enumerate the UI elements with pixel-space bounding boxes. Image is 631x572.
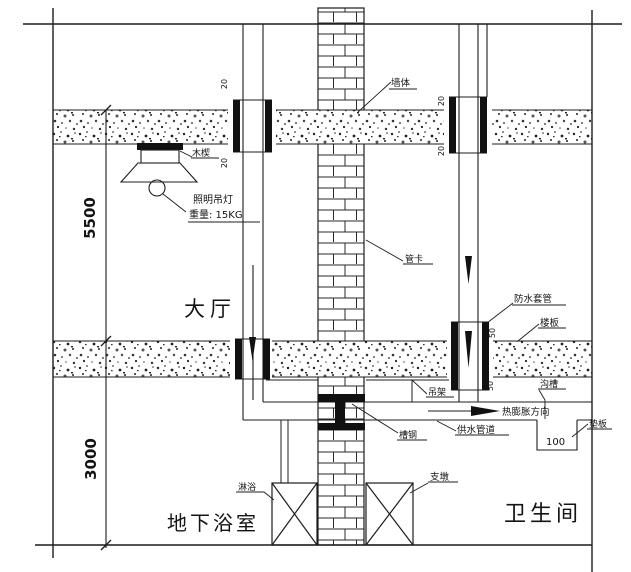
label-support-pier: 支墩 (430, 471, 450, 483)
brick-wall (318, 8, 364, 545)
dim-groove-depth: 100 (546, 437, 565, 448)
pendant-lamp (121, 143, 197, 196)
label-expansion-direction: 热膨胀方向 (502, 406, 550, 418)
label-wood-wedge: 木楔 (192, 147, 210, 159)
lamp-mount-plate (137, 143, 183, 150)
label-groove: 沟槽 (540, 378, 558, 390)
right-riser-pipe (449, 24, 489, 402)
label-supply-pipe: 供水管道 (457, 424, 496, 436)
flow-arrow-down-left (249, 337, 256, 361)
label-pad-plate: 垫板 (589, 418, 607, 430)
dim-hall-height: 5500 (81, 197, 99, 239)
label-shower: 淋浴 (238, 481, 256, 493)
label-floor-slab: 楼板 (540, 317, 560, 329)
support-pier-left (272, 483, 317, 545)
dim-basement-height: 3000 (82, 438, 100, 480)
upper-floor-slab (53, 110, 592, 144)
label-channel-steel: 槽钢 (399, 429, 417, 441)
support-pier-right (366, 483, 413, 545)
dim-sleeve-20-b: 20 (220, 158, 229, 168)
horizontal-supply-pipe (243, 380, 592, 483)
dim-sleeve-20-d: 20 (437, 146, 446, 156)
room-toilet: 卫生间 (504, 502, 582, 527)
flow-arrow-down-right (465, 256, 472, 284)
drawing-canvas: 墙体 木楔 照明吊灯 重量: 15KG 管卡 防水套管 楼板 吊架 沟槽 热膨胀… (0, 0, 631, 572)
dim-sleeve-50-a: 50 (488, 328, 497, 338)
shower-drop-pipe (281, 420, 288, 483)
waterproof-sleeve-shape (451, 322, 489, 390)
label-lamp-weight: 重量: 15KG (189, 208, 243, 221)
dim-sleeve-20-c: 20 (437, 96, 446, 106)
dim-sleeve-20-a: 20 (220, 79, 229, 89)
room-basement-bath: 地下浴室 (167, 511, 259, 535)
label-hanger: 吊架 (428, 387, 446, 398)
label-wall: 墙体 (391, 77, 411, 89)
lower-floor-slab (53, 341, 592, 377)
expansion-arrow (428, 406, 500, 416)
label-lamp: 照明吊灯 (193, 194, 233, 206)
label-pipe-clamp: 管卡 (405, 253, 423, 265)
dim-sleeve-50-b: 50 (486, 381, 495, 391)
room-hall: 大厅 (184, 297, 236, 321)
lamp-shade (121, 163, 197, 182)
leader-lines (163, 82, 612, 500)
section-drawing: 墙体 木楔 照明吊灯 重量: 15KG 管卡 防水套管 楼板 吊架 沟槽 热膨胀… (0, 0, 631, 572)
label-waterproof-sleeve: 防水套管 (514, 293, 552, 305)
